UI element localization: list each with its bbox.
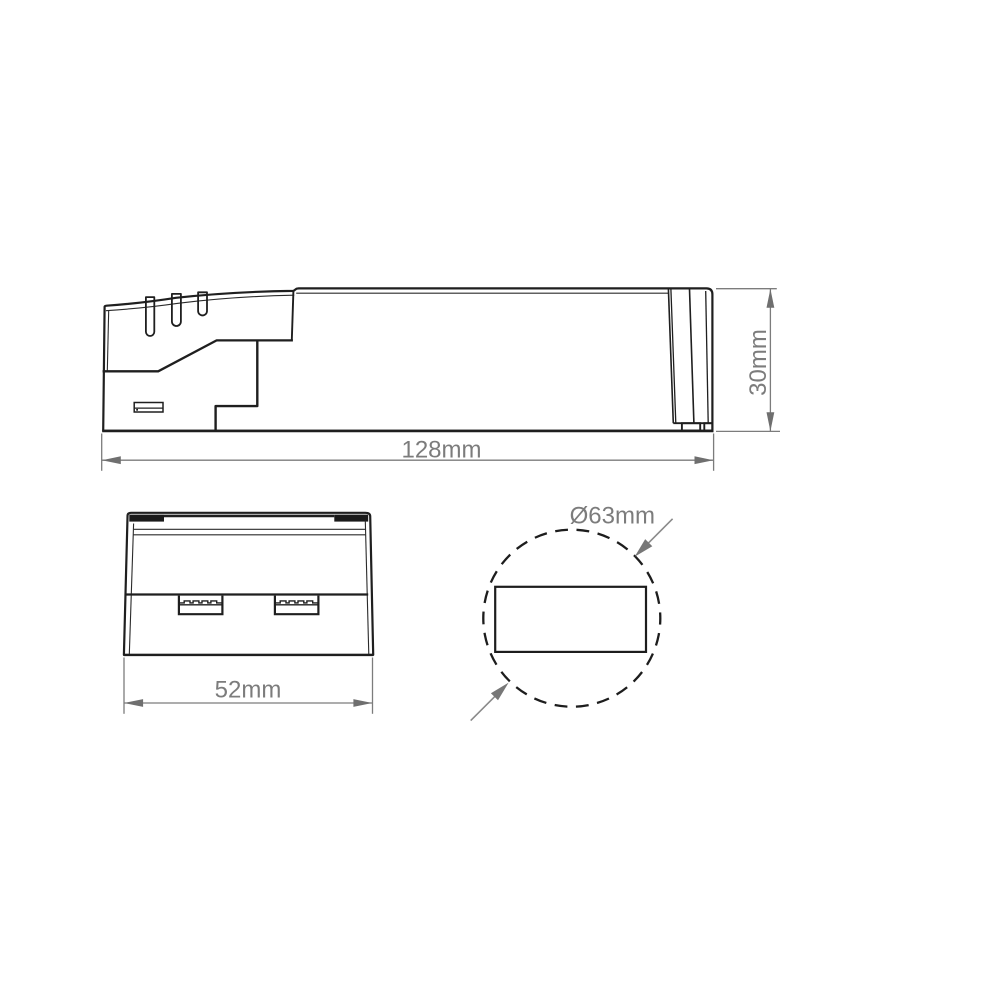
- svg-text:30mm: 30mm: [745, 329, 772, 396]
- svg-text:Ø63mm: Ø63mm: [570, 502, 655, 529]
- svg-text:52mm: 52mm: [215, 676, 282, 703]
- svg-text:128mm: 128mm: [401, 436, 481, 463]
